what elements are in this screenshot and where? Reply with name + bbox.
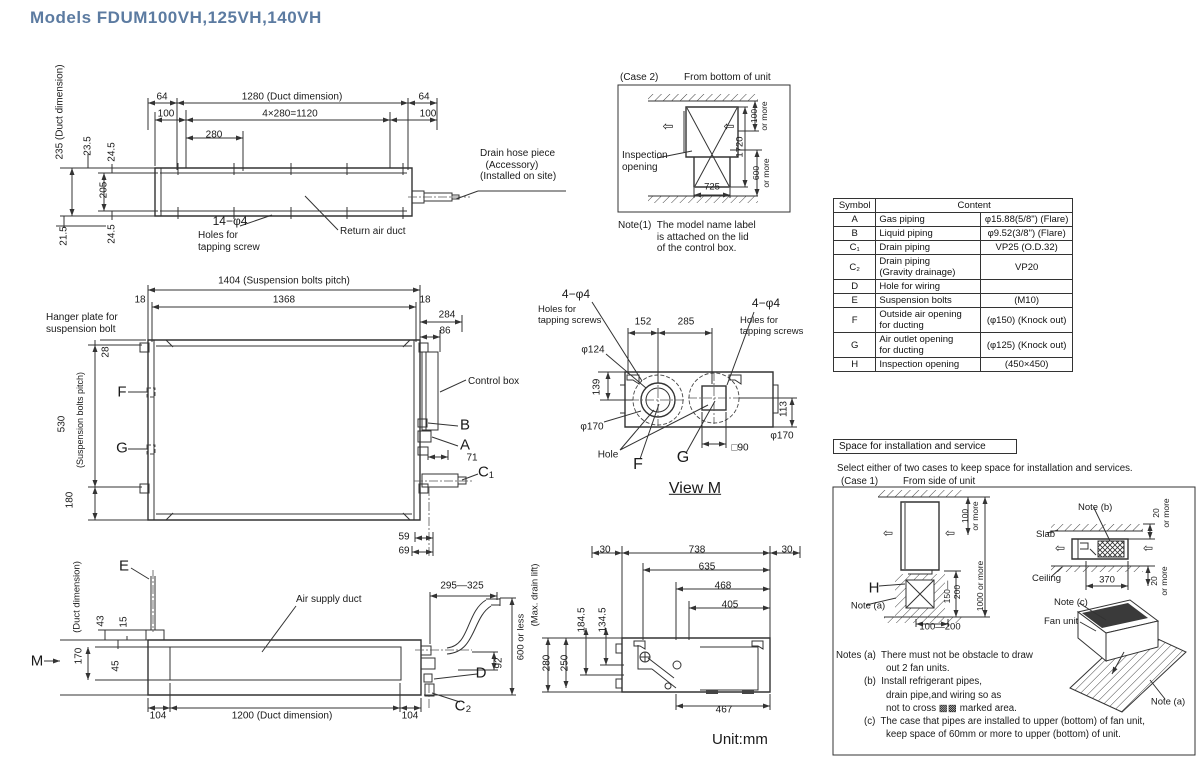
label-control-box: Control box	[468, 376, 519, 388]
case2-subtitle: From bottom of unit	[684, 72, 771, 84]
arrow-left-case1-b: ⇦	[945, 527, 955, 541]
case2-title: (Case 2)	[620, 72, 658, 84]
label-drain-hose-piece: Drain hose piece (Accessory) (Installed …	[480, 148, 556, 183]
dim-phi124: φ124	[581, 344, 604, 356]
dim-530: 530	[56, 416, 68, 433]
arrow-left-case1r-b: ⇦	[1143, 542, 1153, 556]
note-c-label: Note (c)	[1054, 598, 1088, 609]
dim-235-duct-dimension: 235 (Duct dimension)	[54, 64, 66, 159]
label-max-drain-lift: (Max. drain lift)	[531, 564, 542, 627]
dim-1200-duct: 1200 (Duct dimension)	[232, 710, 333, 722]
dim-104-left: 104	[150, 710, 167, 722]
dim-150-200: 150— 200	[943, 581, 963, 604]
label-holes-tapping-right: Holes for tapping screws	[740, 316, 803, 338]
dim-sq90: □90	[731, 442, 748, 454]
label-F-viewm: F	[633, 456, 643, 474]
dim-92: 92	[493, 657, 505, 668]
col-content: Content	[876, 199, 1073, 213]
label-G-mid: G	[116, 439, 128, 456]
dim-21-5: 21.5	[58, 226, 70, 245]
symbol-table-header: Symbol Content	[834, 199, 1073, 213]
dim-45: 45	[110, 660, 122, 671]
dim-635: 635	[699, 561, 716, 573]
label-slab: Slab	[1036, 530, 1055, 541]
dim-600-or-less: 600 or less	[517, 614, 528, 660]
notes-line-4: drain pipe,and wiring so as	[886, 690, 1001, 701]
dim-295-325: 295—325	[440, 580, 483, 592]
dim-phi170-right: φ170	[770, 430, 793, 442]
dim-24-5-bottom: 24.5	[106, 224, 118, 243]
dim-1368: 1368	[273, 294, 295, 306]
arrow-left-case2-a: ⇦	[663, 120, 674, 135]
dim-69: 69	[398, 545, 409, 557]
dim-100-left: 100	[158, 108, 175, 120]
dim-64-left: 64	[156, 91, 167, 103]
dim-1404-pitch: 1404 (Suspension bolts pitch)	[218, 275, 350, 287]
dim-170-duct: 170	[73, 648, 85, 665]
dim-134-5: 134.5	[597, 607, 609, 632]
arrow-left-case1r-a: ⇦	[1055, 542, 1065, 556]
dim-20-or-more-bottom: 20 or more	[1150, 566, 1170, 595]
dim-370: 370	[1099, 576, 1115, 587]
symbol-table-row: GAir outlet opening for ducting(φ125) (K…	[834, 333, 1073, 358]
notes-line-2: out 2 fan units.	[886, 663, 950, 674]
symbol-table-row: DHole for wiring	[834, 280, 1073, 294]
dim-18-right: 18	[419, 294, 430, 306]
label-duct-dimension-vert: (Duct dimension)	[73, 561, 84, 633]
space-select-note: Select either of two cases to keep space…	[837, 463, 1133, 474]
label-A-mid: A	[460, 436, 470, 453]
dim-1280-duct: 1280 (Duct dimension)	[242, 91, 343, 103]
dim-4phi4-left: 4−φ4	[562, 288, 590, 302]
dim-23-5: 23.5	[82, 136, 94, 155]
dim-1720: 1720	[736, 136, 747, 157]
dim-184-5: 184.5	[576, 607, 588, 632]
label-inspection-opening: Inspection opening	[622, 150, 668, 173]
dim-205: 205	[98, 182, 110, 199]
label-E: E	[119, 557, 129, 574]
dim-100-or-more-case1: 100 or more	[961, 501, 981, 530]
dim-284: 284	[439, 309, 456, 321]
col-symbol: Symbol	[834, 199, 876, 213]
label-unit-mm: Unit:mm	[712, 731, 768, 748]
dim-28: 28	[100, 346, 112, 357]
label-B-mid: B	[460, 416, 470, 433]
label-M: M	[31, 652, 44, 669]
note-a-label-right: Note (a)	[1151, 698, 1185, 709]
notes-line-7: keep space of 60mm or more to upper (bot…	[886, 729, 1121, 740]
arrow-left-case2-b: ⇦	[724, 120, 735, 135]
dim-139: 139	[591, 379, 603, 396]
dim-100-200: 100—200	[919, 623, 960, 634]
notes-line-1: Notes (a) There must not be obstacle to …	[836, 650, 1033, 661]
symbol-table-row: BLiquid pipingφ9.52(3/8") (Flare)	[834, 227, 1073, 241]
symbol-table-row: C₁Drain pipingVP25 (O.D.32)	[834, 241, 1073, 255]
dim-1000-or-more: 1000 or more	[976, 561, 986, 612]
label-suspension-pitch-vert: (Suspension bolts pitch)	[75, 372, 85, 468]
note-1: Note(1) The model name label is attached…	[618, 220, 756, 255]
space-section-title: Space for installation and service	[833, 439, 1017, 454]
dim-280-vert: 280	[541, 655, 553, 672]
label-C2: C₂	[455, 697, 472, 714]
dim-24-5-top: 24.5	[106, 142, 118, 161]
label-hanger-plate: Hanger plate for suspension bolt	[46, 312, 118, 335]
dim-64-right: 64	[418, 91, 429, 103]
label-D: D	[476, 664, 487, 681]
dim-4phi4-right: 4−φ4	[752, 297, 780, 311]
case1-title: (Case 1)	[841, 476, 878, 487]
label-view-m: View M	[669, 480, 721, 498]
dim-250-vert: 250	[559, 655, 571, 672]
dim-152: 152	[635, 316, 652, 328]
label-air-supply-duct: Air supply duct	[296, 594, 362, 606]
dim-71: 71	[466, 452, 477, 464]
dim-725: 725	[704, 183, 720, 194]
dim-113: 113	[778, 401, 790, 417]
arrow-left-case1-a: ⇦	[883, 527, 893, 541]
dim-15: 15	[118, 616, 130, 627]
label-hole: Hole	[598, 449, 619, 461]
label-holes-tapping-left: Holes for tapping screws	[538, 305, 601, 327]
dim-468: 468	[715, 580, 732, 592]
symbol-table-row: ESuspension bolts(M10)	[834, 294, 1073, 308]
dim-180: 180	[64, 492, 76, 509]
dim-30-right: 30	[781, 544, 792, 556]
dim-100-right: 100	[420, 108, 437, 120]
label-ceiling: Ceiling	[1032, 574, 1061, 585]
dim-600-or-more-case2: 600 or more	[752, 158, 772, 187]
technical-drawing-page: Models FDUM100VH,125VH,140VH	[0, 0, 1200, 761]
dim-405: 405	[722, 599, 739, 611]
label-C1-mid: C₁	[478, 463, 494, 480]
dim-280: 280	[206, 129, 223, 141]
dim-104-right: 104	[402, 710, 419, 722]
dim-86: 86	[439, 325, 450, 337]
notes-line-3: (b) Install refrigerant pipes,	[864, 676, 982, 687]
dim-4x280: 4×280=1120	[262, 108, 317, 120]
symbol-table-row: AGas pipingφ15.88(5/8") (Flare)	[834, 213, 1073, 227]
label-return-air-duct: Return air duct	[340, 226, 406, 238]
note-a-label-left: Note (a)	[851, 602, 885, 613]
label-G-viewm: G	[677, 449, 689, 467]
label-holes-tapping-screw: Holes for tapping screw	[198, 230, 260, 253]
dim-43: 43	[95, 615, 107, 626]
case1-subtitle: From side of unit	[903, 476, 975, 487]
dim-20-or-more-top: 20 or more	[1152, 498, 1172, 527]
dim-phi170-left: φ170	[580, 421, 603, 433]
symbol-table: Symbol Content AGas pipingφ15.88(5/8") (…	[833, 198, 1073, 372]
dim-285: 285	[678, 316, 695, 328]
label-H: H	[869, 579, 880, 596]
dim-467: 467	[716, 704, 733, 716]
symbol-table-row: C₂Drain piping (Gravity drainage)VP20	[834, 255, 1073, 280]
notes-line-5: not to cross ▩▩ marked area.	[886, 703, 1017, 714]
dim-738: 738	[689, 544, 706, 556]
label-14-phi4: 14−φ4	[213, 215, 248, 229]
label-fan-unit: Fan unit	[1044, 617, 1078, 628]
symbol-table-row: HInspection opening(450×450)	[834, 358, 1073, 372]
note-b-label: Note (b)	[1078, 503, 1112, 514]
label-F-mid: F	[117, 383, 126, 400]
notes-line-6: (c) The case that pipes are installed to…	[864, 716, 1145, 727]
dim-30-left: 30	[599, 544, 610, 556]
dim-59: 59	[398, 531, 409, 543]
symbol-table-row: FOutside air opening for ducting(φ150) (…	[834, 308, 1073, 333]
dim-100-or-more-case2: 100 or more	[750, 101, 770, 130]
dim-18-left: 18	[134, 294, 145, 306]
